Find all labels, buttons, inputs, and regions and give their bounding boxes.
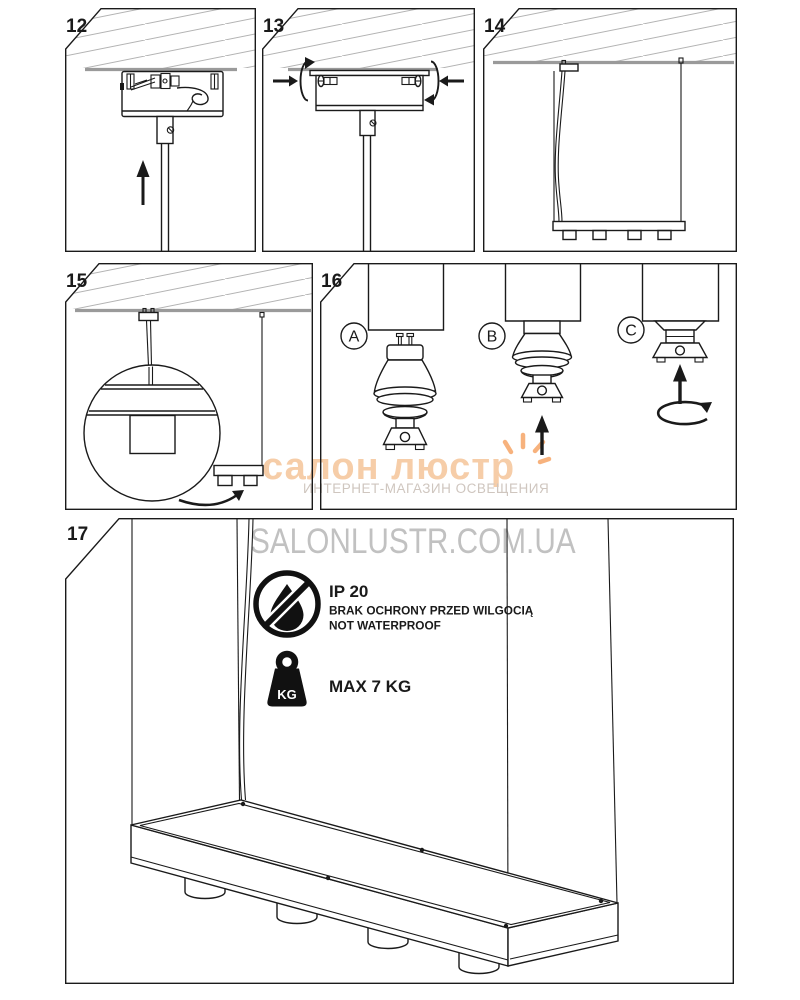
no-moisture-icon	[256, 573, 318, 635]
ip-note-en: NOT WATERPROOF	[329, 619, 441, 633]
power-cable	[555, 71, 565, 222]
socket-holder-c	[653, 321, 707, 362]
manual-page: салон люстр ИНТЕРНЕТ-МАГАЗИН ОСВЕЩЕНИЯ S…	[0, 0, 800, 1000]
step-number: 17	[67, 524, 88, 545]
gu10-bulb-a	[374, 334, 436, 450]
ceiling-hatch	[66, 9, 255, 68]
panel-12: 12	[65, 8, 256, 252]
svg-text:C: C	[625, 323, 637, 340]
gu10-bulb-b	[513, 321, 572, 455]
max-weight-text: MAX 7 KG	[329, 677, 411, 696]
step-number: 15	[66, 271, 88, 292]
insert-arrow-c	[673, 364, 687, 404]
label-a: A	[341, 323, 367, 349]
lamp-shade-c	[643, 264, 719, 321]
lamp-shade-a	[369, 264, 444, 330]
ceiling-hatch	[66, 264, 312, 309]
press-arrow-right	[439, 76, 464, 87]
ceiling-hatch	[263, 9, 474, 68]
weight-icon: KG	[267, 654, 306, 707]
step-number: 12	[66, 16, 87, 37]
insert-arrow-b	[535, 415, 549, 455]
step-number: 16	[321, 271, 342, 292]
step-number: 14	[484, 16, 506, 37]
hanging-bar-end	[214, 466, 263, 486]
socket-holder-b	[521, 366, 563, 403]
panel-17: 17	[65, 518, 734, 984]
canopy	[120, 72, 223, 117]
ceiling-bracket	[139, 309, 158, 367]
svg-text:B: B	[487, 329, 498, 346]
ip-rating-text: IP 20	[329, 582, 368, 601]
press-arrow-left	[273, 76, 298, 87]
ceiling-hatch	[484, 9, 736, 61]
power-cable	[240, 519, 253, 800]
zoom-circle	[84, 365, 220, 501]
step-number: 13	[263, 16, 284, 37]
push-up-arrow	[137, 160, 150, 205]
panel-15: 15	[65, 263, 313, 510]
svg-text:A: A	[349, 329, 360, 346]
lamp-shade-b	[506, 264, 581, 321]
panel-16: 16 A B C	[320, 263, 737, 510]
panel-13: 13	[262, 8, 475, 252]
suspension-wire-right	[679, 58, 683, 222]
socket-holder-a	[383, 407, 427, 450]
rotate-arrow-c	[658, 402, 712, 424]
ip-note-pl: BRAK OCHRONY PRZED WILGOCIĄ	[329, 604, 534, 618]
label-b: B	[479, 323, 505, 349]
panel-14: 14	[483, 8, 737, 252]
canopy	[310, 71, 429, 111]
suspension-rod	[360, 111, 376, 252]
suspension-wire-right	[260, 313, 264, 467]
label-c: C	[618, 317, 644, 343]
detail-arrow	[179, 490, 244, 505]
kg-label: KG	[277, 687, 297, 702]
suspension-rod	[157, 117, 174, 252]
hanging-bar	[553, 222, 685, 240]
